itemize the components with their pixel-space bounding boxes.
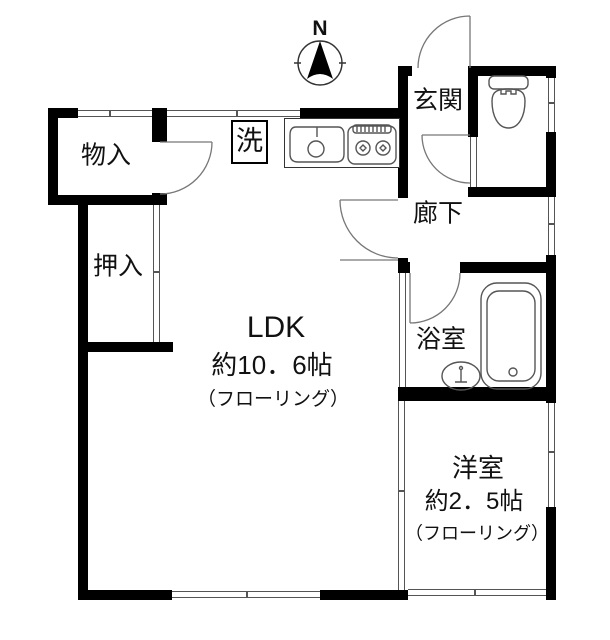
- ldk-name: LDK: [247, 311, 305, 346]
- closet-label: 押入: [93, 253, 143, 282]
- door-arc-entrance: [418, 16, 470, 68]
- western-room-size: 約2．5帖: [425, 488, 524, 516]
- ldk-floor: （フローリング）: [197, 389, 349, 411]
- western-room-floor: （フローリング）: [405, 524, 549, 545]
- compass: [294, 41, 346, 85]
- hallway-label: 廊下: [413, 200, 463, 229]
- compass-label: N: [312, 17, 327, 41]
- kitchen-sink-icon: [290, 127, 344, 162]
- washbasin-icon: [442, 362, 480, 390]
- western-room-name: 洋室: [452, 454, 504, 484]
- floor-plan: 洗: [0, 0, 610, 640]
- toilet-icon: [489, 76, 528, 128]
- ldk-size: 約10．6帖: [211, 351, 332, 381]
- north-arrow-icon: [307, 41, 333, 79]
- door-arc-entrance-hall: [422, 135, 470, 183]
- door-arc-bathroom: [410, 273, 460, 323]
- storage-label: 物入: [81, 142, 131, 171]
- stove-icon: [348, 125, 396, 164]
- door-arc-ldk-hall: [340, 200, 398, 260]
- entrance-label: 玄関: [413, 87, 463, 116]
- door-arc-storage: [160, 142, 212, 194]
- bathtub-icon: [481, 283, 541, 389]
- bathroom-label: 浴室: [416, 326, 466, 355]
